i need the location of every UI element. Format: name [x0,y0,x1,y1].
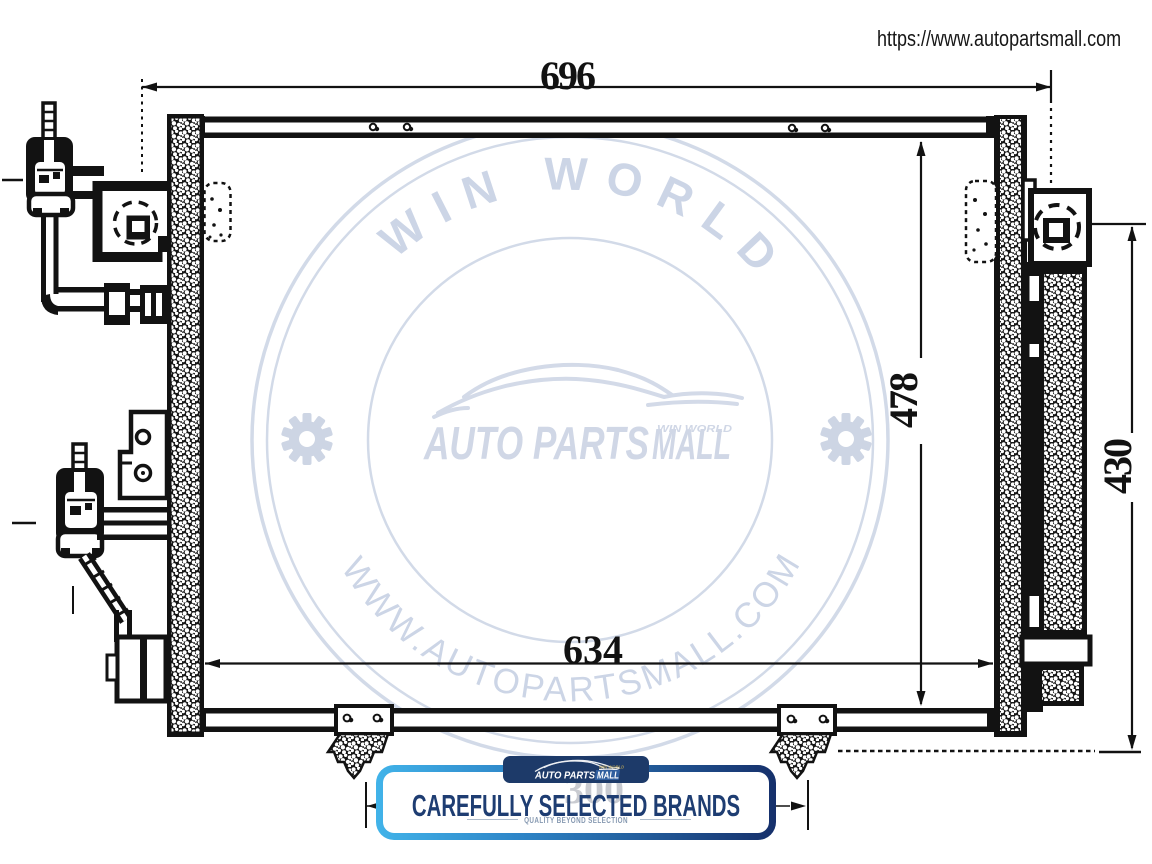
svg-text:696: 696 [540,53,595,98]
svg-text:MALL: MALL [597,771,619,782]
svg-text:WIN WORLD: WIN WORLD [599,765,624,770]
svg-text:AUTO PARTS: AUTO PARTS [534,770,595,782]
svg-text:430: 430 [1095,439,1140,494]
svg-text:478: 478 [881,373,926,428]
svg-text:634: 634 [563,627,623,672]
